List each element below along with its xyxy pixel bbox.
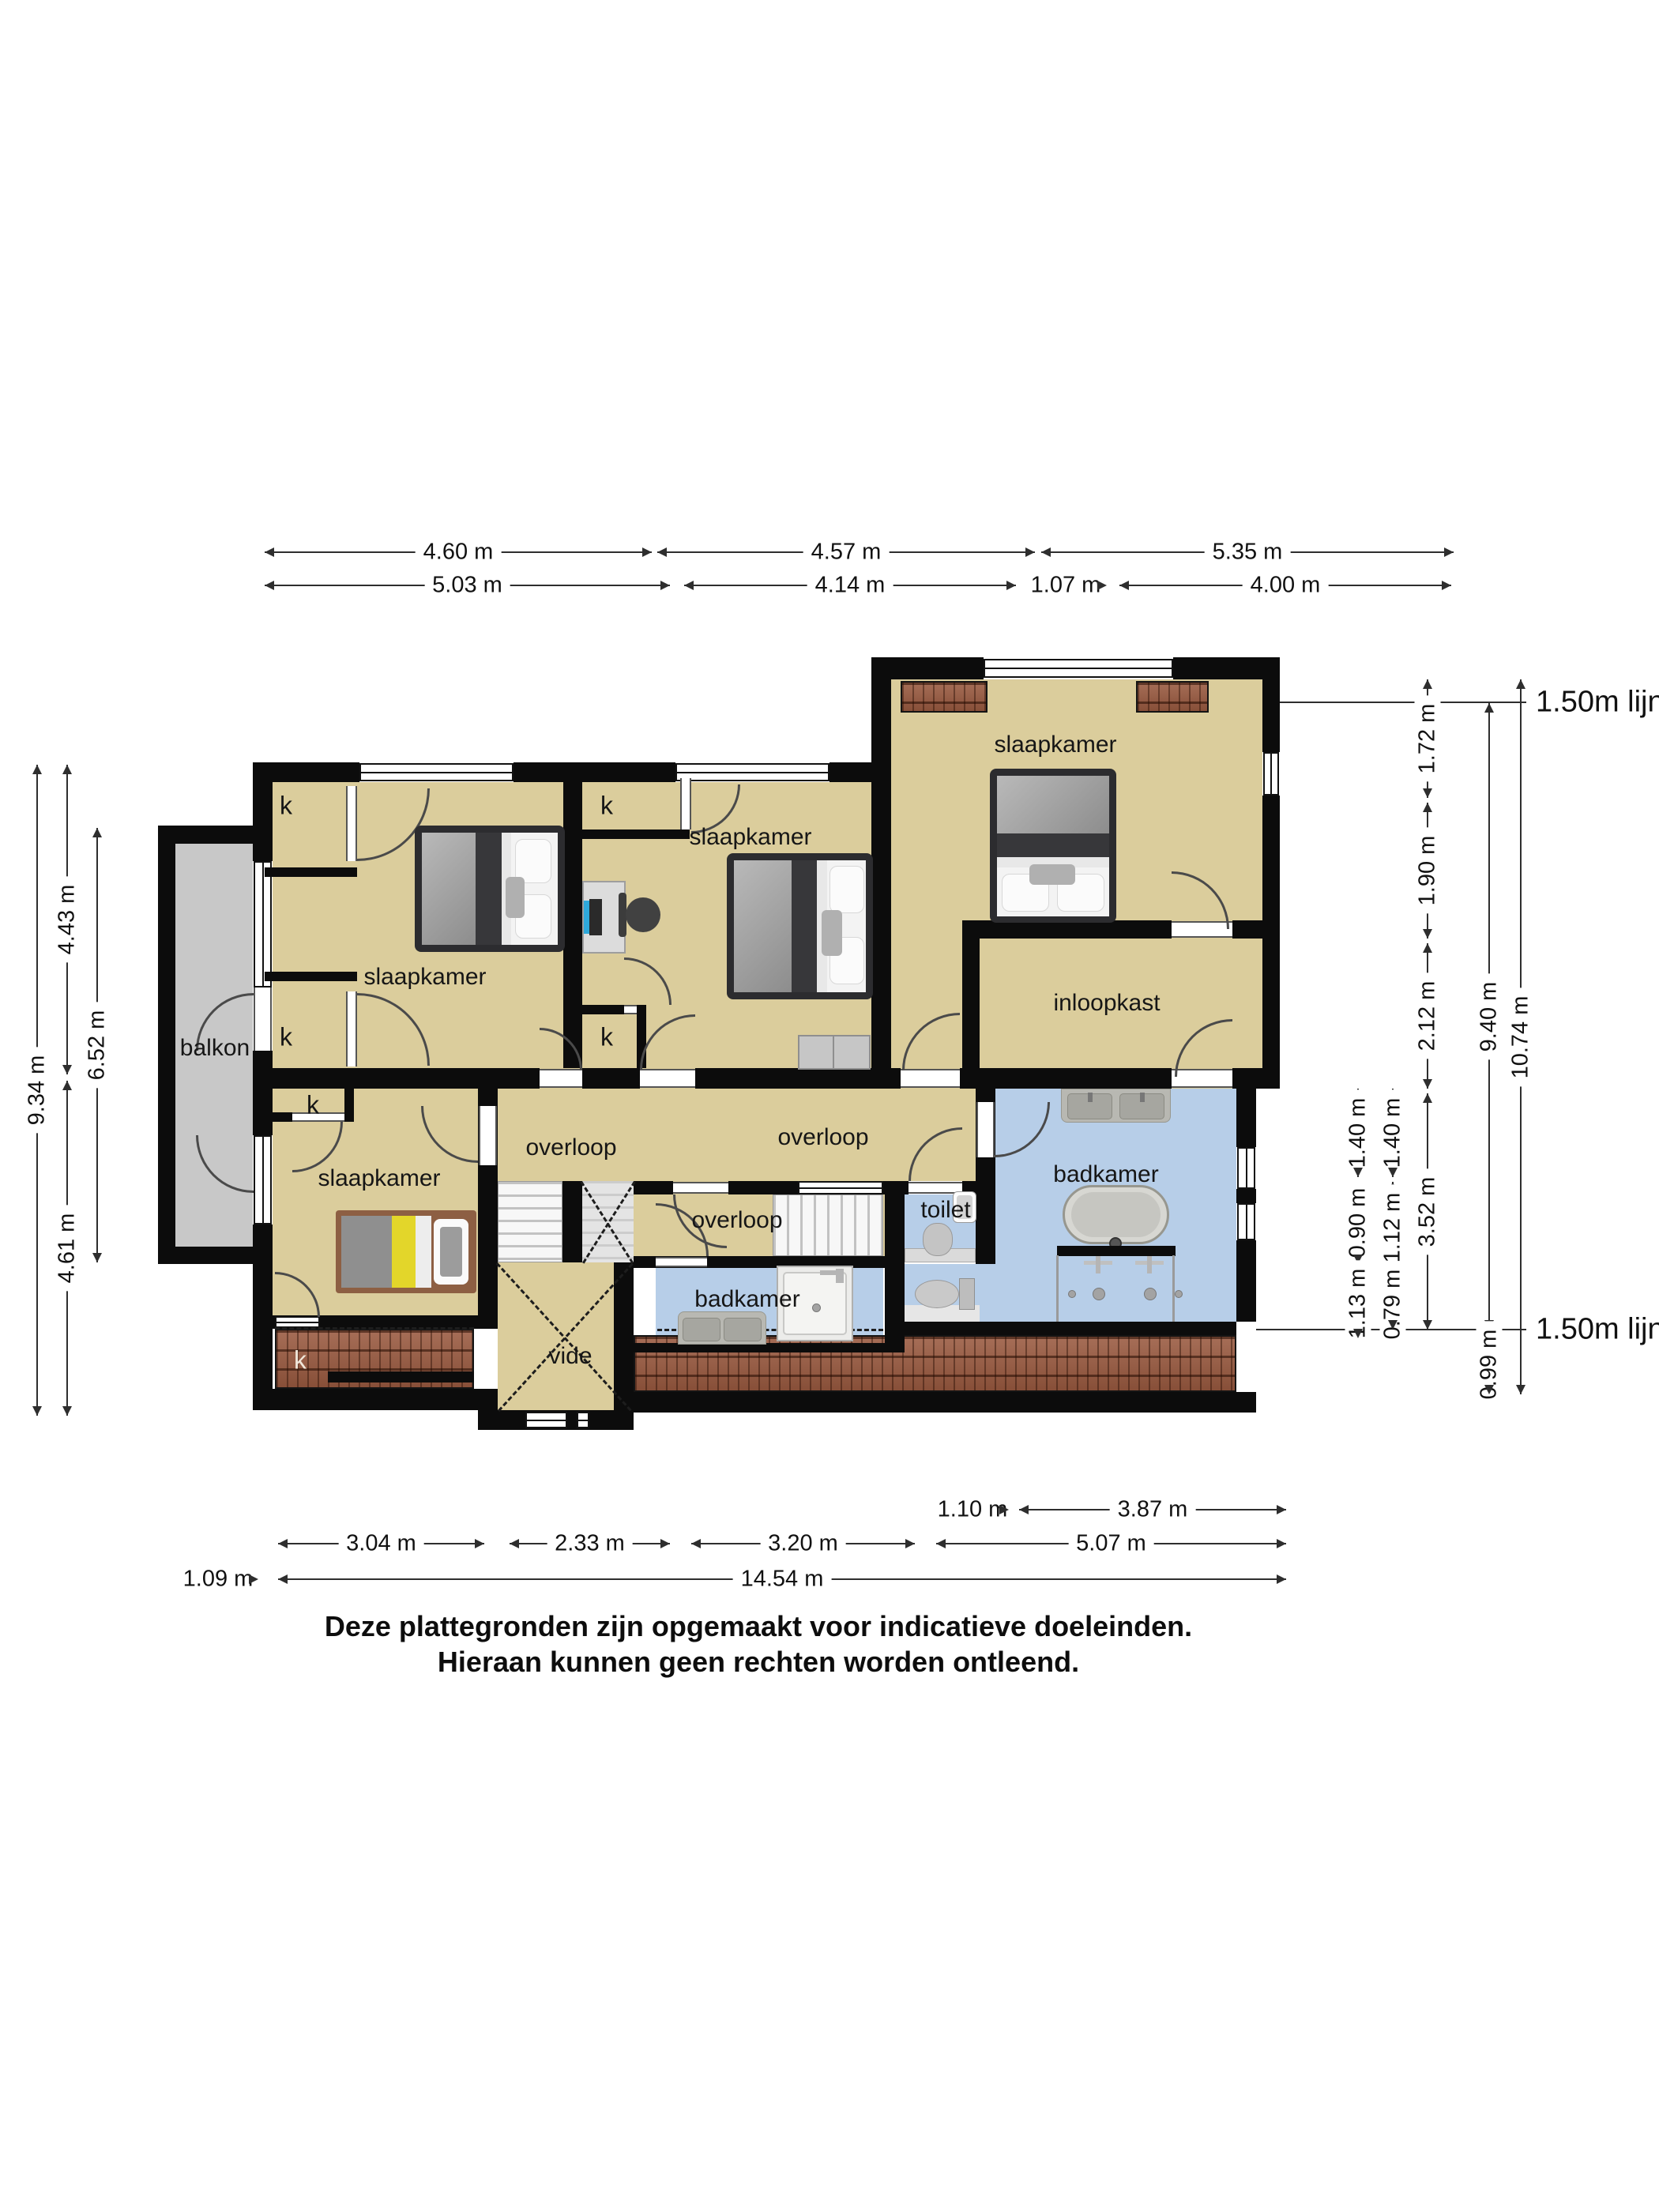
disclaimer: Deze plattegronden zijn opgemaakt voor i… — [197, 1608, 1319, 1680]
room-label-overloop-left: overloop — [525, 1134, 616, 1161]
room-label-slaapkamer-topleft: slaapkamer — [363, 964, 486, 991]
staircase-flight-right — [773, 1194, 883, 1256]
closet-label: k — [280, 792, 292, 821]
ref-line-bottom-label: 1.50m lijn — [1536, 1313, 1659, 1347]
bed-cushion — [822, 910, 842, 956]
dim-right: 0.99 m — [1488, 1334, 1490, 1394]
dim-right: 9.40 m — [1488, 703, 1490, 1330]
wall — [253, 1389, 498, 1410]
room-label-badkamer-large: badkamer — [1053, 1161, 1158, 1188]
door-opening — [540, 1069, 582, 1088]
wall — [253, 762, 273, 861]
dim-right: 3.52 m — [1427, 1093, 1428, 1330]
dim-right: 1.90 m — [1427, 803, 1428, 939]
closet-wall — [265, 867, 357, 877]
dim-left: 4.61 m — [66, 1081, 68, 1416]
wall — [563, 782, 582, 1068]
toilet-tank — [959, 1278, 975, 1310]
wall — [1173, 657, 1273, 679]
bed-pillow-inner — [440, 1227, 462, 1277]
window — [675, 763, 829, 781]
toilet-bowl — [923, 1223, 953, 1256]
dim-label: 2.12 m — [1415, 973, 1441, 1059]
shower-drain — [1068, 1290, 1076, 1298]
bed-mattress — [422, 833, 476, 945]
bathtub-inner — [1071, 1192, 1161, 1237]
wall-balkon-left — [158, 826, 175, 1264]
dim-label: 1.09 m — [175, 1567, 261, 1593]
dim-top: 4.14 m — [684, 585, 1016, 586]
dim-label: 4.43 m — [55, 877, 81, 963]
wall — [562, 1181, 582, 1262]
dim-bottom: 3.87 m — [1019, 1509, 1286, 1510]
dim-label: 5.03 m — [424, 573, 510, 599]
dim-top: 4.57 m — [657, 551, 1035, 553]
room-label-vide: vide — [548, 1343, 592, 1370]
wall — [883, 1181, 908, 1194]
dim-bottom: 5.07 m — [936, 1543, 1286, 1544]
dim-label: 1.10 m — [930, 1497, 1016, 1523]
wall — [962, 920, 1172, 939]
window — [798, 1181, 883, 1194]
wall — [891, 657, 984, 679]
dim-right: 1.40 m — [1357, 1089, 1359, 1177]
closet-label: k — [600, 792, 613, 821]
dim-top: 5.35 m — [1041, 551, 1454, 553]
dim-label: 0.99 m — [1477, 1322, 1503, 1408]
dim-label: 4.60 m — [416, 540, 502, 566]
computer-monitor — [589, 899, 602, 935]
closet-wall — [344, 1089, 354, 1122]
wall — [695, 1068, 901, 1089]
floorplan-canvas: 1.50m lijn 1.50m lijn slaapkamer slaapka… — [0, 0, 1659, 2212]
closet-wall — [582, 829, 690, 839]
wall — [253, 1224, 273, 1410]
wall — [728, 1181, 798, 1194]
bed-sheet — [416, 1216, 431, 1288]
bed-blanket-band — [792, 860, 817, 992]
dim-label: 4.57 m — [803, 540, 890, 566]
dim-bottom: 14.54 m — [278, 1578, 1286, 1580]
dim-right: 1.12 m — [1392, 1182, 1394, 1273]
bed-mattress — [997, 776, 1109, 833]
wall — [871, 657, 891, 1068]
dim-label: 1.13 m — [1345, 1261, 1371, 1347]
closet-wall — [265, 972, 357, 981]
bed-pillow — [829, 866, 864, 913]
window — [254, 861, 272, 987]
dim-bottom: 3.20 m — [691, 1543, 915, 1544]
dim-label: 4.14 m — [807, 573, 893, 599]
room-label-slaapkamer-middle: slaapkamer — [689, 824, 811, 851]
dim-label: 0.79 m — [1380, 1261, 1406, 1347]
closet-wall — [273, 1112, 292, 1122]
wall — [614, 1262, 634, 1410]
dim-label: 3.04 m — [338, 1531, 424, 1557]
dim-right: 0.79 m — [1392, 1278, 1394, 1330]
dim-label: 1.12 m — [1380, 1185, 1406, 1271]
room-label-slaapkamer-bottomleft: slaapkamer — [318, 1165, 440, 1192]
dim-right: 2.12 m — [1427, 943, 1428, 1089]
shower-partition — [1057, 1246, 1176, 1256]
wall — [634, 1392, 1256, 1413]
faucet — [1140, 1093, 1145, 1102]
sink-basin — [683, 1318, 720, 1341]
wall — [1262, 796, 1280, 1089]
bed-cushion — [1029, 864, 1075, 885]
faucet — [1088, 1093, 1093, 1102]
room-label-balkon: balkon — [180, 1035, 250, 1062]
roof-slope-line — [275, 1327, 474, 1330]
dim-right: 10.74 m — [1520, 679, 1522, 1394]
dim-label: 6.52 m — [85, 1003, 111, 1089]
dim-label: 10.74 m — [1508, 987, 1534, 1086]
dresser — [798, 1035, 871, 1070]
dim-bottom: 3.04 m — [278, 1543, 484, 1544]
closet-label: k — [280, 1023, 292, 1052]
window — [984, 659, 1173, 678]
window — [577, 1412, 589, 1428]
wall — [903, 1322, 1236, 1335]
wall — [513, 762, 675, 782]
dim-label: 1.90 m — [1415, 828, 1441, 914]
ref-line-top-label: 1.50m lijn — [1536, 686, 1659, 720]
wall — [253, 1051, 273, 1135]
toilet-bowl — [915, 1280, 959, 1308]
dim-label: 5.35 m — [1205, 540, 1291, 566]
shower-glass — [1056, 1255, 1059, 1322]
room-label-overloop-center: overloop — [777, 1124, 868, 1151]
roof-tiles-top-right — [1136, 681, 1209, 713]
dim-bottom: 1.10 m — [936, 1509, 1009, 1510]
room-label-inloopkast: inloopkast — [1053, 990, 1160, 1017]
dim-label: 14.54 m — [733, 1567, 832, 1593]
dim-label: 9.40 m — [1477, 973, 1503, 1059]
dim-label: 3.20 m — [760, 1531, 846, 1557]
shower-drain — [1144, 1288, 1157, 1300]
window — [525, 1412, 567, 1428]
shower-glass — [1172, 1255, 1175, 1322]
shower-fixture — [1096, 1256, 1100, 1273]
door-opening — [254, 987, 272, 1051]
room-label-overloop-small: overloop — [691, 1207, 782, 1234]
dim-right: 1.72 m — [1427, 679, 1428, 798]
closet-label: k — [600, 1023, 613, 1052]
sink-basin — [724, 1318, 762, 1341]
door-opening — [656, 1257, 707, 1267]
dim-label: 4.61 m — [55, 1206, 81, 1292]
dim-right: 0.90 m — [1357, 1182, 1359, 1264]
window — [1237, 1203, 1255, 1240]
shower-head — [836, 1269, 844, 1283]
window — [1263, 752, 1279, 796]
dim-label: 3.52 m — [1415, 1168, 1441, 1255]
wall — [1262, 657, 1280, 752]
roof-step-wall — [328, 1371, 474, 1382]
wall — [634, 1343, 903, 1352]
disclaimer-line1: Deze plattegronden zijn opgemaakt voor i… — [197, 1608, 1319, 1644]
closet-label: k — [307, 1091, 319, 1120]
wall — [582, 1068, 640, 1089]
dim-label: 0.90 m — [1345, 1180, 1371, 1266]
closet-door — [346, 786, 357, 861]
computer-screen — [584, 901, 589, 934]
window — [275, 1316, 320, 1328]
wall — [253, 1068, 540, 1089]
dim-label: 1.72 m — [1415, 696, 1441, 782]
dim-label: 9.34 m — [24, 1048, 51, 1134]
closet-door — [346, 991, 357, 1066]
closet-door — [680, 778, 691, 829]
dim-top: 5.03 m — [265, 585, 670, 586]
window — [254, 1135, 272, 1224]
roof-tiles-top-left — [901, 681, 987, 713]
dim-right: 1.40 m — [1392, 1089, 1394, 1177]
wall — [885, 1194, 905, 1352]
room-label-toilet: toilet — [920, 1197, 970, 1224]
dim-label: 3.87 m — [1110, 1497, 1196, 1523]
dim-label: 2.33 m — [547, 1531, 633, 1557]
bed-mattress — [734, 860, 792, 992]
door-opening — [479, 1106, 497, 1165]
dim-left: 6.52 m — [96, 828, 98, 1262]
room-label-slaapkamer-master: slaapkamer — [994, 732, 1116, 758]
bed-blanket-yellow — [392, 1216, 416, 1288]
dim-label: 5.07 m — [1068, 1531, 1154, 1557]
closet-label: k — [294, 1346, 307, 1375]
door-opening — [901, 1069, 960, 1088]
dim-label: 1.40 m — [1380, 1090, 1406, 1176]
dim-top: 4.00 m — [1119, 585, 1451, 586]
disclaimer-line2: Hieraan kunnen geen rechten worden ontle… — [197, 1644, 1319, 1680]
shower-fixture — [1147, 1256, 1152, 1273]
dim-left: 4.43 m — [66, 765, 68, 1074]
room-label-badkamer-small: badkamer — [694, 1286, 799, 1313]
wall — [1236, 1189, 1256, 1203]
dim-right: 1.13 m — [1357, 1269, 1359, 1338]
wall — [960, 1068, 1172, 1089]
bed-blanket-gray — [341, 1216, 392, 1288]
dim-top: 4.60 m — [265, 551, 652, 553]
wall — [1236, 1240, 1256, 1322]
door-opening — [640, 1069, 695, 1088]
bed-blanket-band — [476, 833, 502, 945]
bed-cushion — [506, 877, 525, 918]
dim-bottom: 2.33 m — [510, 1543, 670, 1544]
shower-drain — [1175, 1290, 1183, 1298]
staircase-flight-left — [498, 1181, 562, 1262]
door-opening — [673, 1182, 728, 1194]
window — [1237, 1147, 1255, 1189]
dresser-line — [833, 1036, 834, 1068]
door-opening — [976, 1102, 995, 1157]
window — [359, 763, 513, 781]
office-chair-seat — [626, 897, 660, 932]
dim-label: 4.00 m — [1243, 573, 1329, 599]
shower-drain — [812, 1303, 821, 1312]
dim-top: 1.07 m — [1025, 585, 1107, 586]
shower-drain — [1093, 1288, 1105, 1300]
dim-label: 1.07 m — [1023, 573, 1109, 599]
closet-wall — [582, 1005, 624, 1014]
wall — [962, 939, 980, 1068]
dim-label: 1.40 m — [1345, 1090, 1371, 1176]
bed-blanket-band — [997, 833, 1109, 857]
wall — [1236, 1089, 1256, 1147]
dim-left: 9.34 m — [36, 765, 38, 1416]
dim-bottom: 1.09 m — [178, 1578, 258, 1580]
